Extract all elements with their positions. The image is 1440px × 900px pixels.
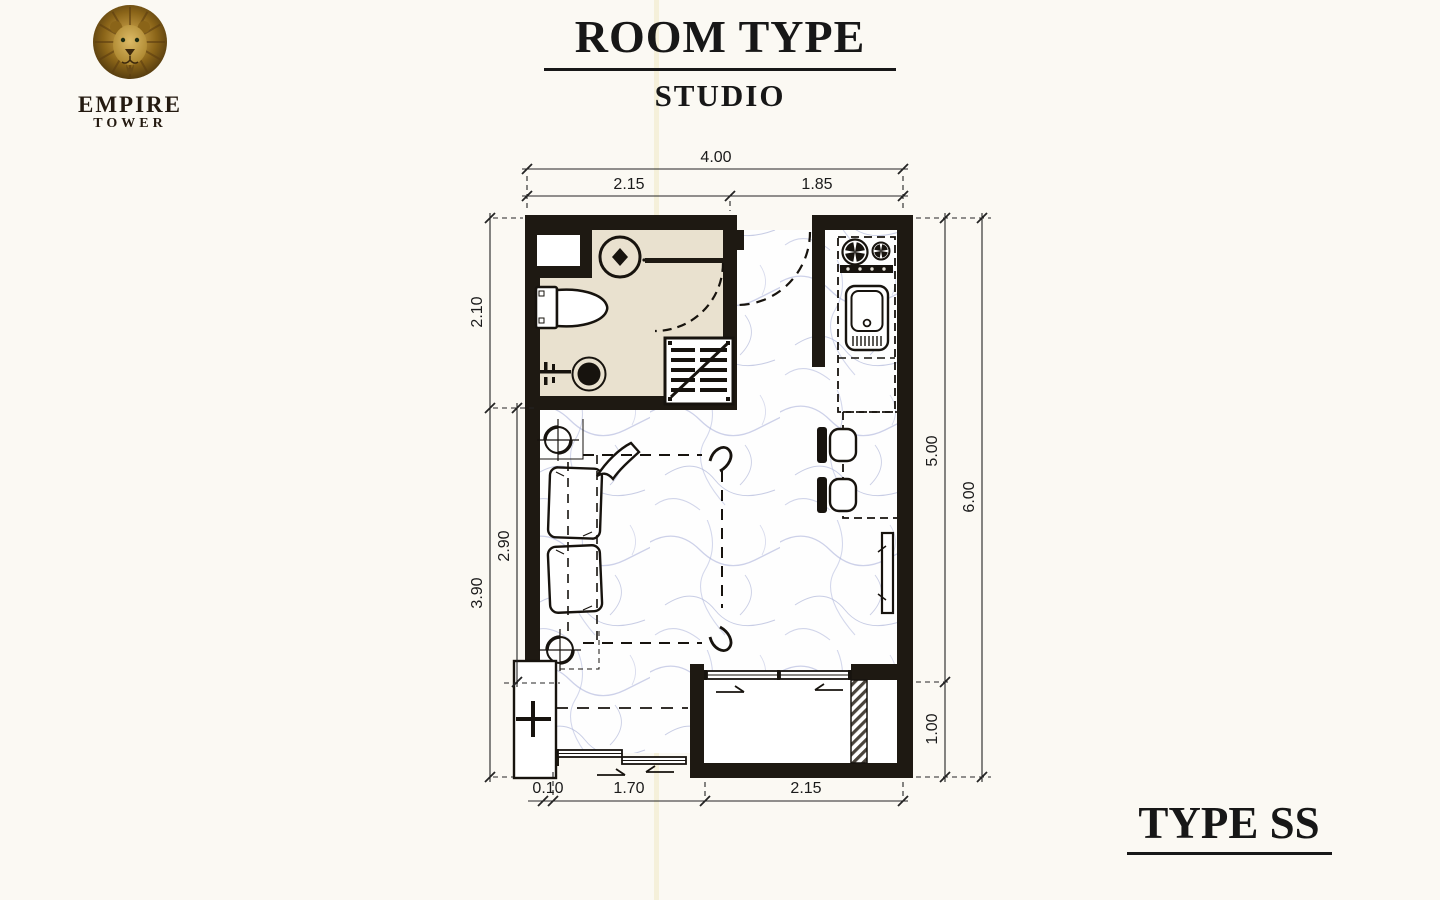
brand-name: EMPIRE: [68, 93, 192, 116]
dim-left-inner: 2.90: [496, 530, 513, 561]
type-underline: [1127, 852, 1332, 855]
sliding-window: [558, 750, 686, 775]
dim-bottom-window: 1.70: [613, 780, 644, 797]
page-header: ROOM TYPE STUDIO: [470, 12, 970, 111]
wall-niche: [537, 235, 580, 266]
empire-tower-logo: EMPIRE TOWER: [68, 2, 192, 131]
bar-stool: [817, 477, 856, 513]
dim-right-balcony: 1.00: [924, 713, 941, 744]
shower-partition: [645, 258, 723, 263]
louver-cabinet-symbol: [665, 338, 733, 404]
dim-bottom-balcony: 2.15: [790, 780, 821, 797]
shaft-hatch: [851, 680, 867, 763]
dim-top-left: 2.15: [613, 176, 644, 193]
bar-stool: [817, 427, 856, 463]
page-title: ROOM TYPE: [470, 12, 970, 63]
room-type-code: TYPE SS: [1123, 801, 1335, 846]
dim-bottom-offset: 0.10: [532, 780, 563, 797]
dim-top-right: 1.85: [801, 176, 832, 193]
page-subtitle: STUDIO: [470, 80, 970, 111]
dim-right-outer: 6.00: [961, 481, 978, 512]
dim-left-outer: 3.90: [469, 577, 486, 608]
kitchen-sink-symbol: [846, 286, 888, 350]
brand-subname: TOWER: [68, 116, 192, 131]
floor-plan-page: { "logo": { "icon": "lion-head-icon", "l…: [0, 0, 1440, 900]
dim-top-total: 4.00: [700, 149, 731, 166]
lion-head-icon: [78, 2, 182, 86]
room-type-label: TYPE SS: [1123, 801, 1335, 855]
dim-left-bathroom: 2.10: [469, 296, 486, 327]
title-underline: [544, 68, 896, 71]
dim-right-inner: 5.00: [924, 435, 941, 466]
floor-plan-drawing: 4.00 2.15 1.85 2.10 3.90 2.90 5.00 6.00 …: [460, 140, 1040, 820]
